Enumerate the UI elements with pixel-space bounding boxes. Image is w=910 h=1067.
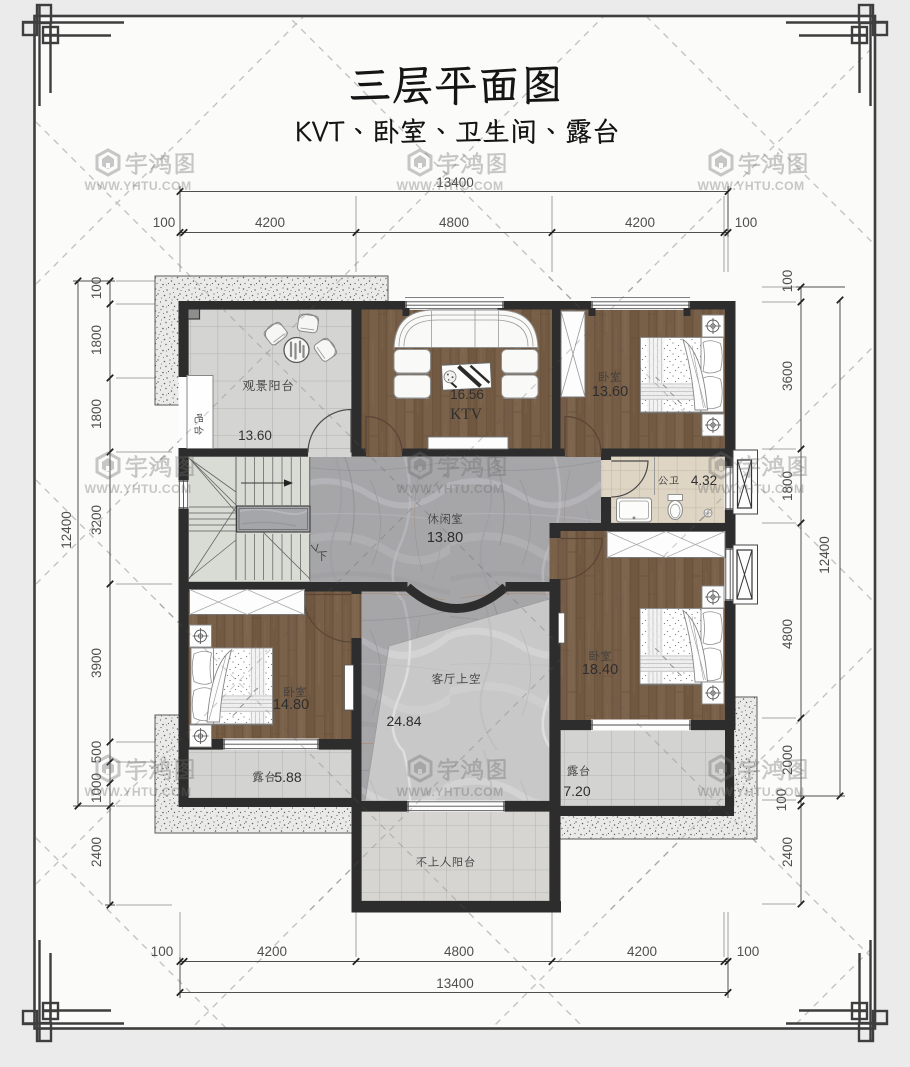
svg-text:13.60: 13.60 bbox=[592, 384, 628, 400]
svg-text:13.60: 13.60 bbox=[238, 428, 272, 443]
svg-text:100: 100 bbox=[153, 215, 176, 230]
svg-text:100: 100 bbox=[735, 215, 758, 230]
svg-text:12400: 12400 bbox=[59, 511, 74, 549]
svg-text:16.56: 16.56 bbox=[450, 387, 484, 402]
svg-text:100: 100 bbox=[151, 944, 174, 959]
svg-text:100: 100 bbox=[89, 277, 104, 300]
svg-text:7.20: 7.20 bbox=[563, 783, 590, 799]
svg-text:5.88: 5.88 bbox=[274, 769, 301, 785]
svg-text:KTV: KTV bbox=[450, 406, 483, 423]
svg-text:13400: 13400 bbox=[436, 976, 474, 991]
svg-text:2400: 2400 bbox=[89, 837, 104, 867]
svg-text:12400: 12400 bbox=[817, 536, 832, 574]
svg-text:4800: 4800 bbox=[780, 619, 795, 649]
svg-text:14.80: 14.80 bbox=[273, 697, 309, 713]
svg-text:18.40: 18.40 bbox=[582, 662, 618, 678]
svg-text:4200: 4200 bbox=[257, 944, 287, 959]
svg-text:3600: 3600 bbox=[780, 361, 795, 391]
svg-text:3200: 3200 bbox=[89, 505, 104, 535]
svg-text:24.84: 24.84 bbox=[386, 713, 421, 729]
svg-text:100: 100 bbox=[737, 944, 760, 959]
svg-text:13.80: 13.80 bbox=[427, 530, 463, 546]
svg-text:4800: 4800 bbox=[439, 215, 469, 230]
svg-text:4200: 4200 bbox=[627, 944, 657, 959]
svg-text:4200: 4200 bbox=[625, 215, 655, 230]
svg-text:1800: 1800 bbox=[89, 399, 104, 429]
svg-text:2400: 2400 bbox=[780, 837, 795, 867]
svg-text:100: 100 bbox=[780, 270, 795, 293]
svg-text:4200: 4200 bbox=[255, 215, 285, 230]
svg-text:4800: 4800 bbox=[444, 944, 474, 959]
svg-text:1800: 1800 bbox=[89, 325, 104, 355]
svg-text:3900: 3900 bbox=[89, 648, 104, 678]
